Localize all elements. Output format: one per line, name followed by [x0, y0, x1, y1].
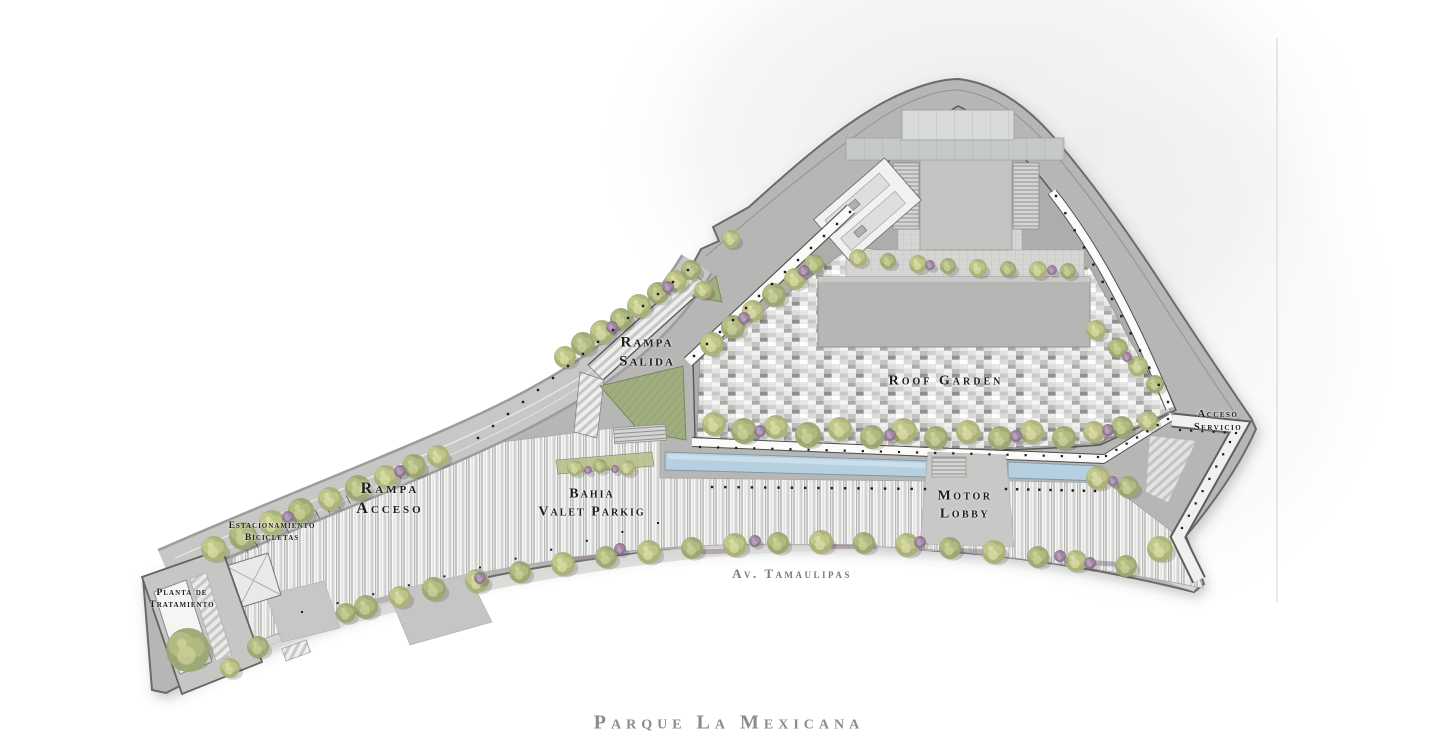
core-block: [920, 158, 1012, 250]
label-line: Servicio: [1194, 421, 1242, 434]
label-line: Planta de: [149, 588, 214, 600]
label-line: Estacionamiento: [229, 521, 316, 533]
label-line: Valet Parkig: [538, 503, 645, 521]
label-rampa-acceso: Rampa Acceso: [356, 479, 423, 519]
label-acceso-servicio: Acceso Servicio: [1194, 408, 1242, 434]
label-planta-de-tratamiento: Planta de Tratamiento: [149, 588, 214, 612]
label-roof-garden: Roof Garden: [889, 372, 1004, 390]
label-rampa-salida: Rampa Salida: [619, 333, 675, 371]
label-motor-lobby: Motor Lobby: [938, 488, 993, 523]
plan-title: Parque La Mexicana: [594, 711, 864, 736]
label-street-av-tamaulipas: Av. Tamaulipas: [732, 566, 852, 582]
site-plan: Rampa Salida Roof Garden Acceso Servicio…: [0, 0, 1450, 750]
label-line: Rampa: [619, 333, 675, 352]
street-name: Av. Tamaulipas: [732, 566, 852, 582]
label-line: Acceso: [356, 499, 423, 519]
label-line: Motor: [938, 488, 993, 506]
site-plan-drawing: [0, 0, 1450, 750]
label-line: Rampa: [356, 479, 423, 499]
stair-east: [1013, 163, 1039, 229]
label-bahia-valet-parking: Bahia Valet Parkig: [538, 486, 645, 521]
label-line: Bahia: [538, 486, 645, 504]
label-line: Bicicletas: [229, 533, 316, 545]
label-line: Roof Garden: [889, 372, 1004, 390]
plaza-stairs: [614, 424, 667, 444]
label-estacionamiento-bicicletas: Estacionamiento Bicicletas: [229, 521, 316, 545]
label-line: Lobby: [938, 505, 993, 523]
label-line: Acceso: [1194, 408, 1242, 421]
label-line: Salida: [619, 352, 675, 371]
label-line: Tratamiento: [149, 600, 214, 612]
